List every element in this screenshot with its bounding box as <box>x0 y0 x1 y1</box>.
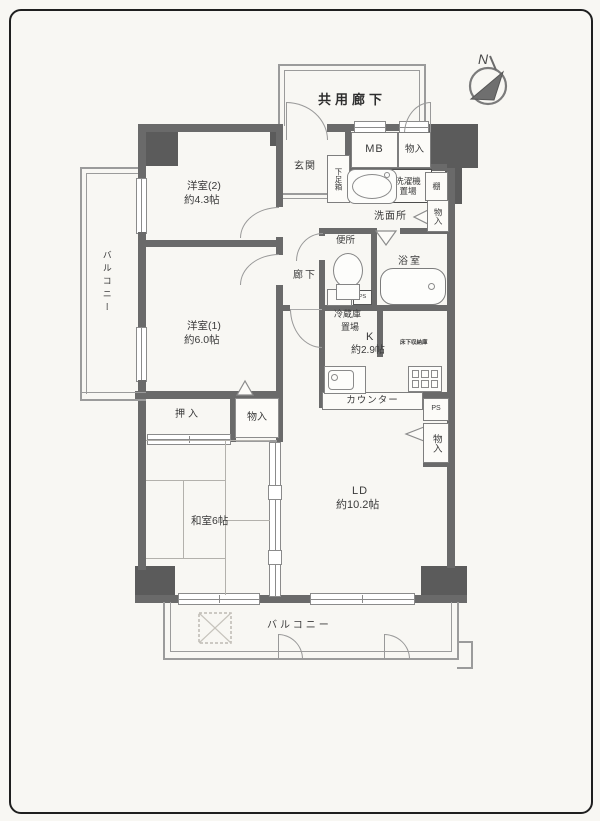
washroom-label: 洗面所 <box>374 211 407 223</box>
balcony-bottom-outline <box>457 667 473 669</box>
entrance-label: 玄関 <box>294 161 316 173</box>
bath-door-arrow-icon <box>373 229 399 248</box>
storage-ld-box: 物入 <box>423 423 449 463</box>
wall <box>319 260 325 311</box>
tatami-line <box>146 440 270 441</box>
storage-mid-arrow-icon <box>235 379 255 397</box>
escape-hatch-icon <box>198 612 232 644</box>
faucet-dot <box>331 374 338 381</box>
window <box>136 178 147 234</box>
room1-size-label: 約6.0帖 <box>184 334 220 347</box>
stove-burner <box>421 370 428 378</box>
stove-burner <box>412 380 419 388</box>
fusuma-handle <box>268 550 282 565</box>
balcony-left-outline <box>80 399 146 401</box>
tatami-line <box>146 558 226 559</box>
fusuma-handle <box>268 485 282 500</box>
tatami-line <box>183 480 184 558</box>
label-common-corridor: 共用廊下 <box>318 92 386 108</box>
toilet-tank <box>336 284 360 300</box>
balcony-bottom-outline <box>471 641 473 669</box>
washer-label: 洗濯機 <box>395 176 421 186</box>
svg-text:N: N <box>478 51 489 67</box>
balcony-left-outline <box>80 167 138 169</box>
room2-size-label: 約4.3帖 <box>184 194 220 207</box>
kitchen-size-label: 約2.9帖 <box>351 345 385 357</box>
wall <box>327 124 351 132</box>
tatami-line <box>225 520 270 521</box>
room2-name-label: 洋室(2) <box>187 180 221 193</box>
bathtub-icon <box>380 268 446 305</box>
balcony-bottom-outline <box>163 602 165 659</box>
wall <box>277 305 290 311</box>
balcony-bottom-outline <box>163 658 459 660</box>
fusuma-sliding-door <box>269 442 281 597</box>
underfloor-storage-label: 床下収納庫 <box>400 340 428 347</box>
wall <box>276 237 283 255</box>
wall <box>319 228 377 234</box>
balcony-bottom-label: バルコニー <box>267 620 332 632</box>
wall-block <box>135 566 175 598</box>
toilet-label: 便所 <box>336 235 355 246</box>
closet-label: 押入 <box>175 409 201 421</box>
stove-burner <box>431 370 438 378</box>
ld-size-label: 約10.2帖 <box>336 499 379 512</box>
storage-wash-label: 物入 <box>433 208 443 225</box>
washer-label: 置場 <box>399 186 416 196</box>
counter-label: カウンター <box>346 395 399 406</box>
ld-name-label: LD <box>352 485 368 498</box>
balcony-bottom-outline <box>457 602 459 659</box>
counter: カウンター <box>322 392 423 410</box>
wall <box>138 380 146 570</box>
corridor-outline <box>278 64 425 66</box>
shoe-box-label: 下足箱 <box>334 168 343 191</box>
compass-north-icon: N <box>460 50 516 112</box>
balcony-bottom-outline <box>451 602 452 652</box>
tatami-line <box>146 480 226 481</box>
balcony-left-outline <box>80 167 82 401</box>
floor-plan: 共用廊下 N <box>0 0 600 821</box>
window <box>136 327 147 382</box>
storage-wash-box: 物入 <box>427 200 449 232</box>
bathtub-drain <box>428 283 435 290</box>
japanese-room-label: 和室6帖 <box>191 515 228 528</box>
meter-box: MB <box>351 132 398 168</box>
wall <box>138 240 283 247</box>
room1-name-label: 洋室(1) <box>187 320 221 333</box>
corridor-outline <box>284 70 420 71</box>
stove-burner <box>421 380 428 388</box>
wall <box>276 132 283 207</box>
wall-block <box>428 124 478 168</box>
entrance-step-line <box>283 193 327 195</box>
ps-box-label: PS <box>431 405 440 413</box>
window <box>178 593 260 605</box>
kitchen-name-label: K <box>366 331 373 344</box>
corridor-outline <box>284 70 285 126</box>
wall <box>276 285 283 393</box>
storage-corridor-box: 物入 <box>398 132 431 168</box>
storage-corridor-label: 物入 <box>405 144 424 155</box>
hallway-label: 廊下 <box>293 270 317 282</box>
storage-ld-label: 物入 <box>430 434 441 453</box>
balcony-left-outline <box>80 392 146 393</box>
mb-label: MB <box>365 143 384 156</box>
fridge-label: 冷蔵庫 <box>334 309 361 320</box>
shelf-top-label: 棚 <box>433 182 441 192</box>
shelf-top-box: 棚 <box>425 172 448 201</box>
wall <box>138 124 283 132</box>
balcony-left-outline <box>86 173 138 174</box>
toilet-icon <box>333 253 363 288</box>
storage-mid-label: 物入 <box>247 412 267 424</box>
window <box>310 593 415 605</box>
stove-burner <box>412 370 419 378</box>
ps-box: PS <box>423 398 449 421</box>
fridge-label: 置場 <box>341 322 359 333</box>
balcony-left-label: バルコニー <box>101 250 112 315</box>
corridor-outline <box>278 64 280 126</box>
stove-burner <box>431 380 438 388</box>
storage-mid-box: 物入 <box>235 398 279 438</box>
faucet-dot <box>384 172 390 178</box>
balcony-bottom-outline <box>170 602 171 652</box>
wall <box>138 132 146 178</box>
balcony-bottom-outline <box>170 651 452 652</box>
bath-label: 浴室 <box>398 256 422 268</box>
stove-icon <box>408 366 442 392</box>
entrance-step-line <box>283 198 327 199</box>
balcony-left-outline <box>86 173 87 394</box>
